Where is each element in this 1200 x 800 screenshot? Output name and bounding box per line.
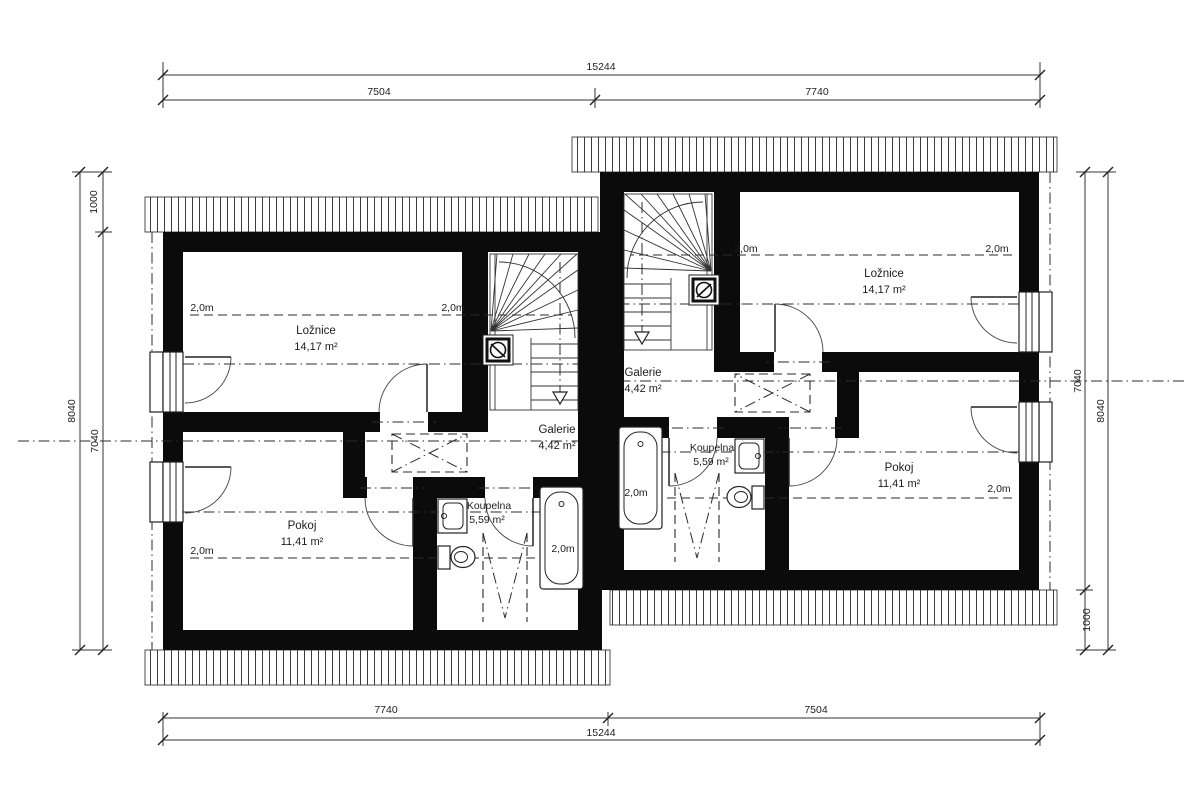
- dim-top-total: 15244: [586, 61, 615, 73]
- room-label-pokoj-right: Pokoj: [885, 462, 914, 474]
- floor-plan-page: Ložnice 14,17 m² Galerie 4,42 m² Pokoj 1…: [0, 0, 1200, 800]
- dim-right-overall: 8040: [1095, 399, 1107, 423]
- left-unit-graphics: [18, 232, 602, 650]
- room-area-koupelna-left: 5,59 m²: [469, 514, 505, 526]
- dim-top-left: 7504: [367, 86, 391, 98]
- headroom-label: 2,0m: [734, 243, 758, 255]
- room-area-pokoj-right: 11,41 m²: [878, 478, 921, 490]
- dimensions-bottom: 7740 7504 15244: [158, 704, 1045, 746]
- headroom-label: 2,0m: [190, 302, 214, 314]
- room-label-pokoj-left: Pokoj: [288, 520, 317, 532]
- headroom-label: 2,0m: [624, 487, 648, 499]
- right-unit-graphics: [600, 172, 1184, 590]
- room-label-loznice-left: Ložnice: [296, 325, 336, 337]
- room-area-koupelna-right: 5,59 m²: [693, 456, 729, 468]
- dimensions-top: 15244 7504 7740: [158, 61, 1045, 108]
- headroom-label: 2,0m: [987, 483, 1011, 495]
- headroom-label: 2,0m: [985, 243, 1009, 255]
- room-area-galerie-right: 4,42 m²: [624, 383, 662, 395]
- dim-bottom-total: 15244: [586, 727, 615, 739]
- dim-left-unit-height: 7040: [89, 429, 101, 453]
- room-label-galerie-right: Galerie: [624, 367, 661, 379]
- dim-top-right: 7740: [805, 86, 829, 98]
- room-label-koupelna-left: Koupelna: [467, 500, 512, 512]
- room-area-galerie-left: 4,42 m²: [538, 440, 576, 452]
- dim-right-unit-height: 7040: [1072, 369, 1084, 393]
- room-label-koupelna-right: Koupelna: [690, 442, 735, 454]
- dimensions-left: 1000 8040 7040: [66, 167, 112, 655]
- dim-bottom-left: 7740: [374, 704, 398, 716]
- dim-left-offset: 1000: [88, 190, 100, 214]
- room-area-loznice-left: 14,17 m²: [294, 341, 338, 353]
- dimensions-right: 7040 8040 1000: [1072, 167, 1116, 655]
- room-area-pokoj-left: 11,41 m²: [281, 536, 324, 548]
- room-label-galerie-left: Galerie: [538, 424, 575, 436]
- eave-band-right-bottom: [610, 590, 1057, 625]
- eave-band-left-top: [145, 197, 598, 232]
- room-label-loznice-right: Ložnice: [864, 268, 904, 280]
- eave-band-left-bottom: [145, 650, 610, 685]
- headroom-label: 2,0m: [551, 543, 575, 555]
- dim-right-offset: 1000: [1081, 608, 1093, 632]
- floor-plan-svg: Ložnice 14,17 m² Galerie 4,42 m² Pokoj 1…: [0, 0, 1200, 800]
- headroom-label: 2,0m: [190, 545, 214, 557]
- dim-bottom-right: 7504: [804, 704, 828, 716]
- dim-left-overall: 8040: [66, 399, 78, 423]
- eave-band-right-top: [572, 137, 1057, 172]
- room-area-loznice-right: 14,17 m²: [862, 284, 906, 296]
- headroom-label: 2,0m: [441, 302, 465, 314]
